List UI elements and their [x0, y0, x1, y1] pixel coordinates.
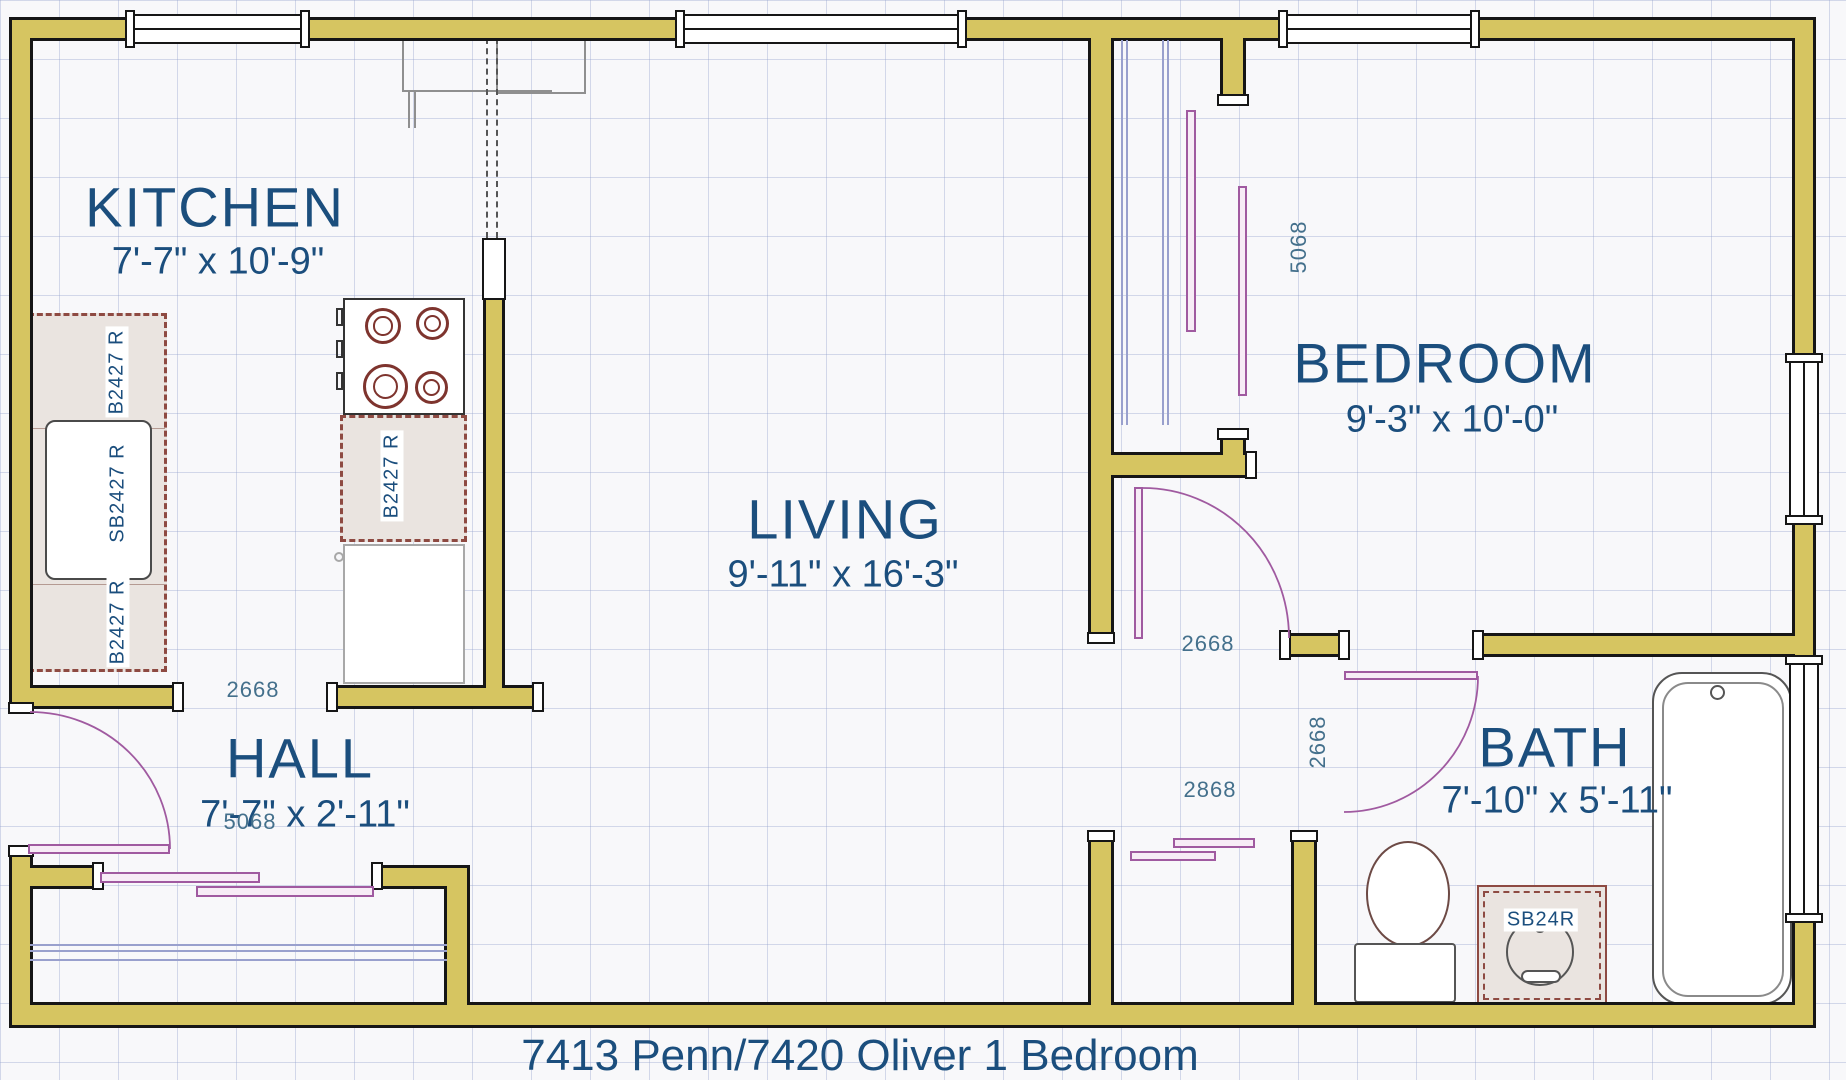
cabinet-label: SB24R	[1504, 909, 1578, 932]
closet-rod-line	[1162, 40, 1164, 425]
hall-label: HALL	[226, 726, 374, 791]
door-panel	[1186, 110, 1196, 332]
bedroom-door-arc	[1143, 488, 1289, 638]
door-panel	[28, 844, 170, 854]
living-dims: 9'-11" x 16'-3"	[728, 554, 959, 597]
bath-door-size: 2668	[1305, 716, 1331, 769]
bedroom-label: BEDROOM	[1293, 331, 1596, 396]
door-panel	[1134, 487, 1143, 639]
door-panel	[1173, 838, 1255, 848]
door-panel	[100, 872, 260, 883]
bedroom-closet-door-size: 5068	[1286, 221, 1312, 274]
living-label: LIVING	[747, 487, 943, 552]
cabinet-label: SB2427 R	[107, 440, 130, 545]
plan-title: 7413 Penn/7420 Oliver 1 Bedroom	[521, 1031, 1199, 1080]
door-panel	[1238, 186, 1247, 396]
entry-door-arc	[30, 712, 170, 849]
floor-plan: KITCHEN 7'-7" x 10'-9" LIVING 9'-11" x 1…	[0, 0, 1846, 1080]
hall-opening-size: 2668	[227, 677, 280, 703]
door-panel	[196, 886, 374, 897]
bedroom-dims: 9'-3" x 10'-0"	[1346, 399, 1559, 442]
kitchen-dims: 7'-7" x 10'-9"	[112, 241, 325, 284]
closet-rod-line	[1126, 40, 1128, 425]
closet-rod-line	[30, 959, 447, 961]
closet-rod-line	[30, 944, 447, 946]
door-panel	[1130, 851, 1216, 861]
kitchen-label: KITCHEN	[85, 175, 345, 240]
closet-rod-line	[1121, 40, 1123, 425]
bath-label: BATH	[1478, 715, 1631, 780]
door-panel	[1344, 671, 1478, 680]
closet-rod-line	[30, 950, 447, 952]
bedroom-door-size: 2668	[1182, 631, 1235, 657]
cabinet-label: B2427 R	[106, 327, 129, 418]
living-closet-door-size: 2868	[1184, 777, 1237, 803]
hall-closet-door-size: 5068	[224, 809, 277, 835]
bath-dims: 7'-10" x 5'-11"	[1442, 780, 1673, 823]
closet-rod-line	[1167, 40, 1169, 425]
cabinet-label: B2427 R	[381, 431, 404, 522]
cabinet-label: B2427 R	[107, 577, 130, 668]
